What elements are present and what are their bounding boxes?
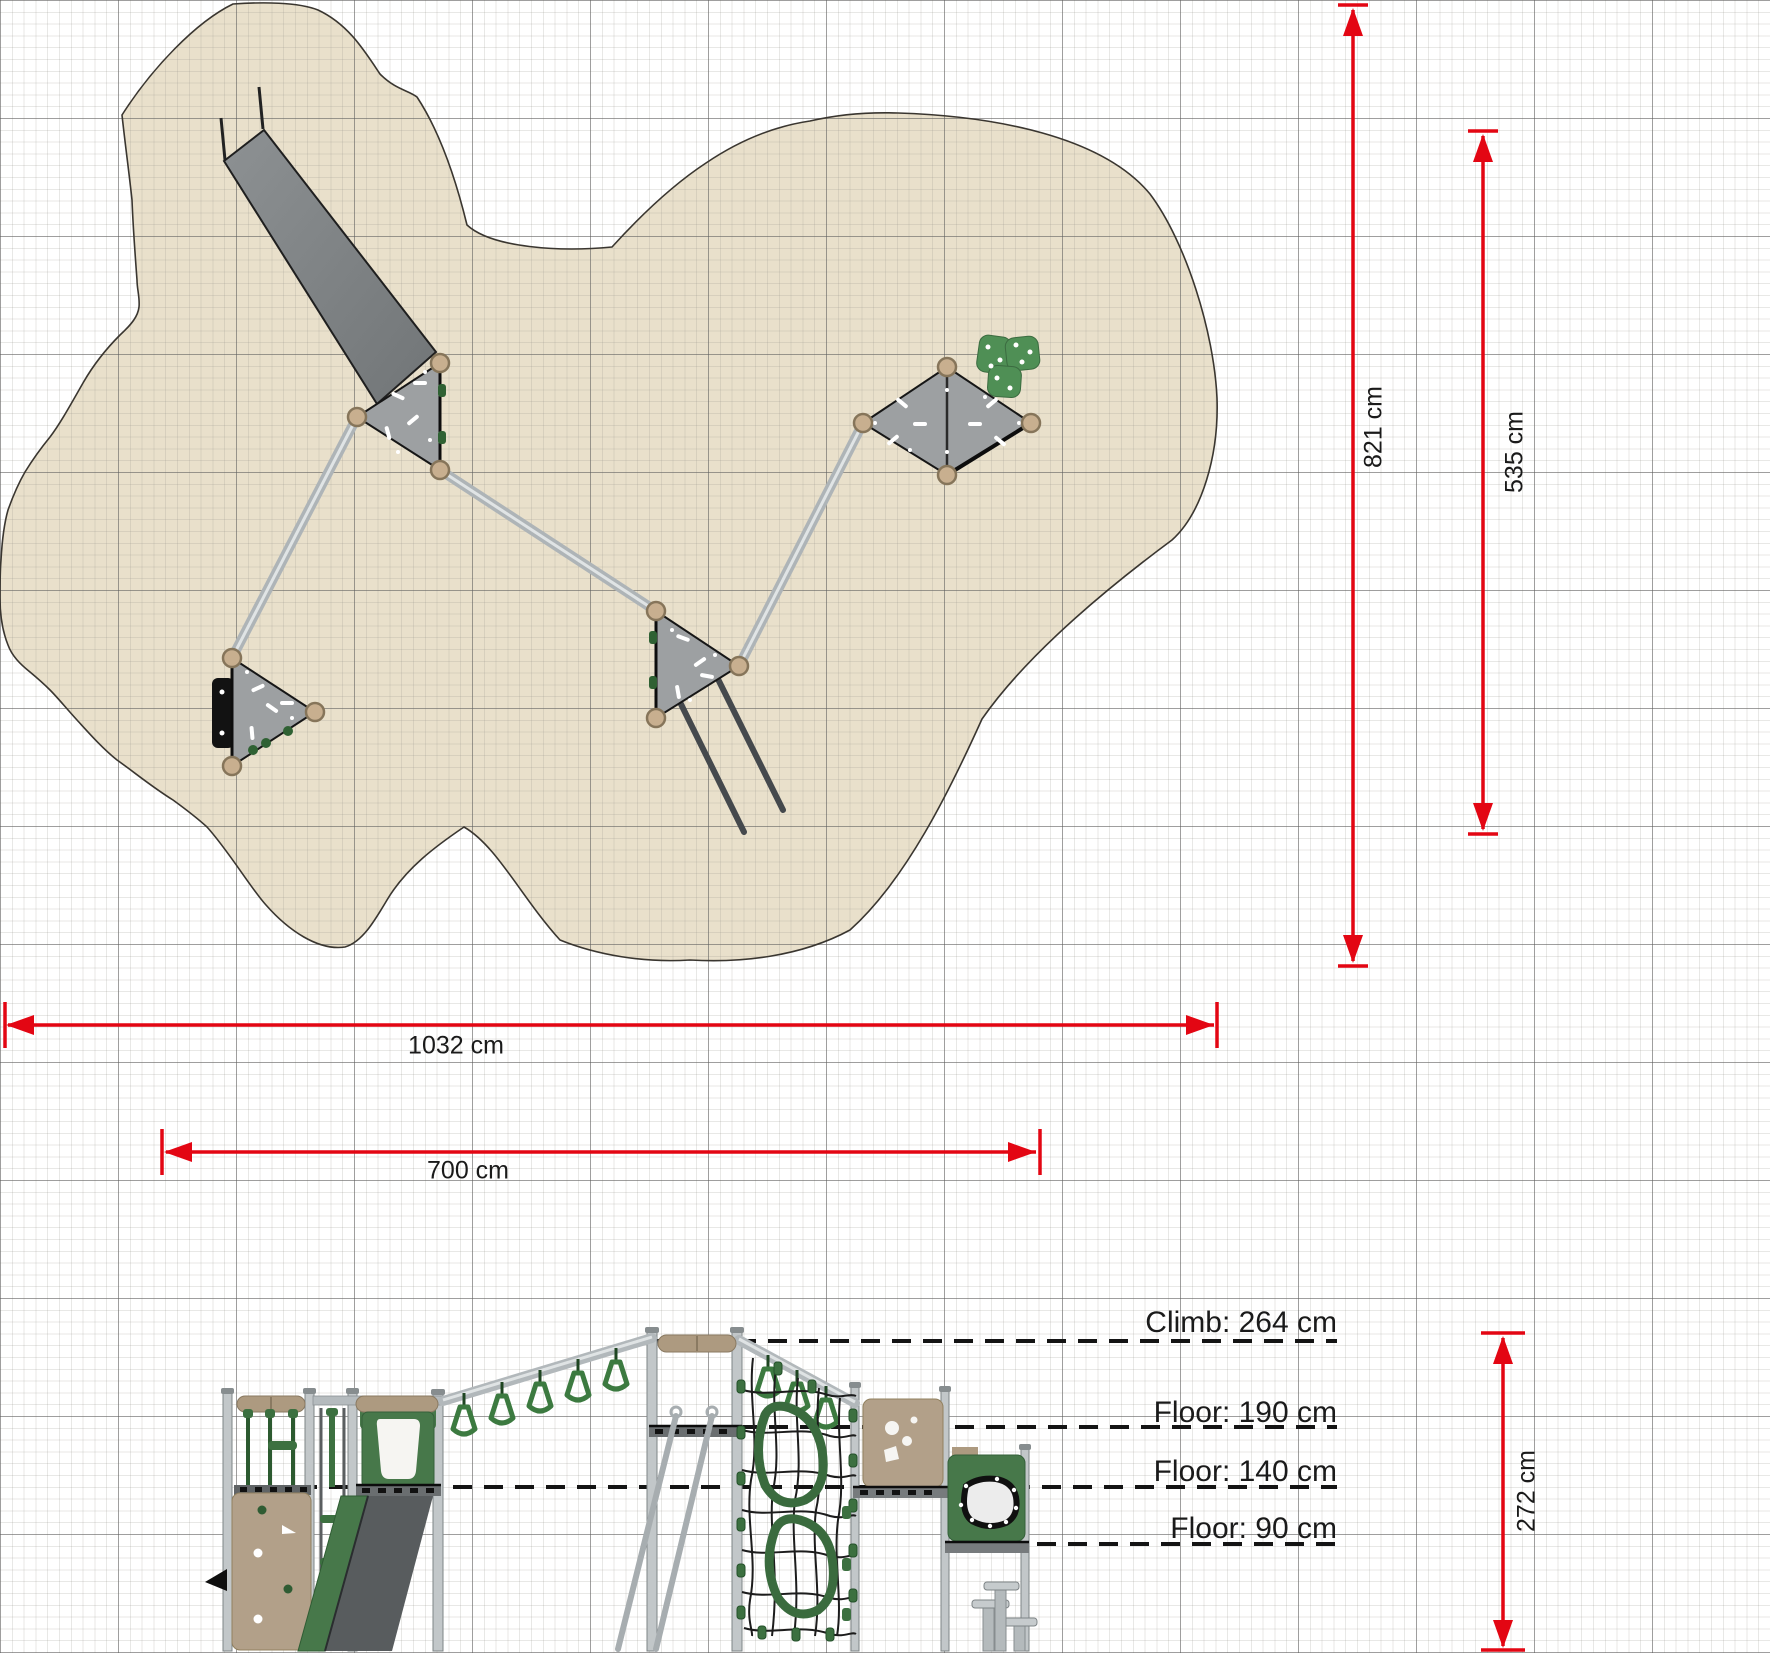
floor-140-label: Floor: 140 cm: [1154, 1455, 1337, 1489]
top-view: [212, 87, 1041, 832]
drawing-layer: [0, 0, 1770, 1653]
platform-triangle-lowerleft: [212, 658, 315, 766]
dimension-line-535: [1468, 131, 1498, 834]
support-beams-top: [232, 417, 863, 666]
climbing-hold-top: [649, 631, 657, 644]
dimension-line-700: [162, 1129, 1040, 1175]
climbing-net: [737, 1358, 857, 1641]
floor-190-label: Floor: 190 cm: [1154, 1396, 1337, 1430]
climbing-hold-top: [438, 384, 446, 397]
climbing-wall-panel: [232, 1485, 311, 1650]
left-tower-railing: [237, 1396, 305, 1486]
dimension-label-700: 700 cm: [427, 1157, 509, 1186]
pennant-flag: [205, 1569, 227, 1591]
firefighter-poles-elevation: [618, 1407, 717, 1649]
dimension-line-821: [1338, 5, 1368, 966]
climb-height-label: Climb: 264 cm: [1145, 1306, 1337, 1340]
post-climbing-holds: [842, 1506, 851, 1621]
platform-triangle-middle: [649, 611, 739, 718]
slide-top-view: [221, 87, 436, 404]
panel-with-holes: [853, 1399, 949, 1498]
window-panel: [945, 1447, 1029, 1553]
stepper-tiles-top: [976, 334, 1041, 398]
climbing-hold-top: [438, 431, 446, 444]
apex-structure: [649, 1335, 742, 1437]
playground-plan-drawing: 1032 cm 700 cm 821 cm 535 cm 272 cm Clim…: [0, 0, 1770, 1653]
dimension-label-272: 272 cm: [1513, 1450, 1542, 1532]
dimension-label-1032: 1032 cm: [408, 1032, 504, 1061]
elevation-view: [205, 1327, 1337, 1651]
floor-90-label: Floor: 90 cm: [1170, 1512, 1337, 1546]
slide-elevation: [298, 1496, 433, 1651]
dimension-label-821: 821 cm: [1360, 386, 1389, 468]
dimension-line-1032: [5, 1002, 1217, 1048]
dimension-label-535: 535 cm: [1501, 411, 1530, 493]
climbing-hold-top: [649, 676, 657, 689]
safety-surface-outline: [0, 3, 1217, 961]
slide-platform: [356, 1396, 441, 1496]
